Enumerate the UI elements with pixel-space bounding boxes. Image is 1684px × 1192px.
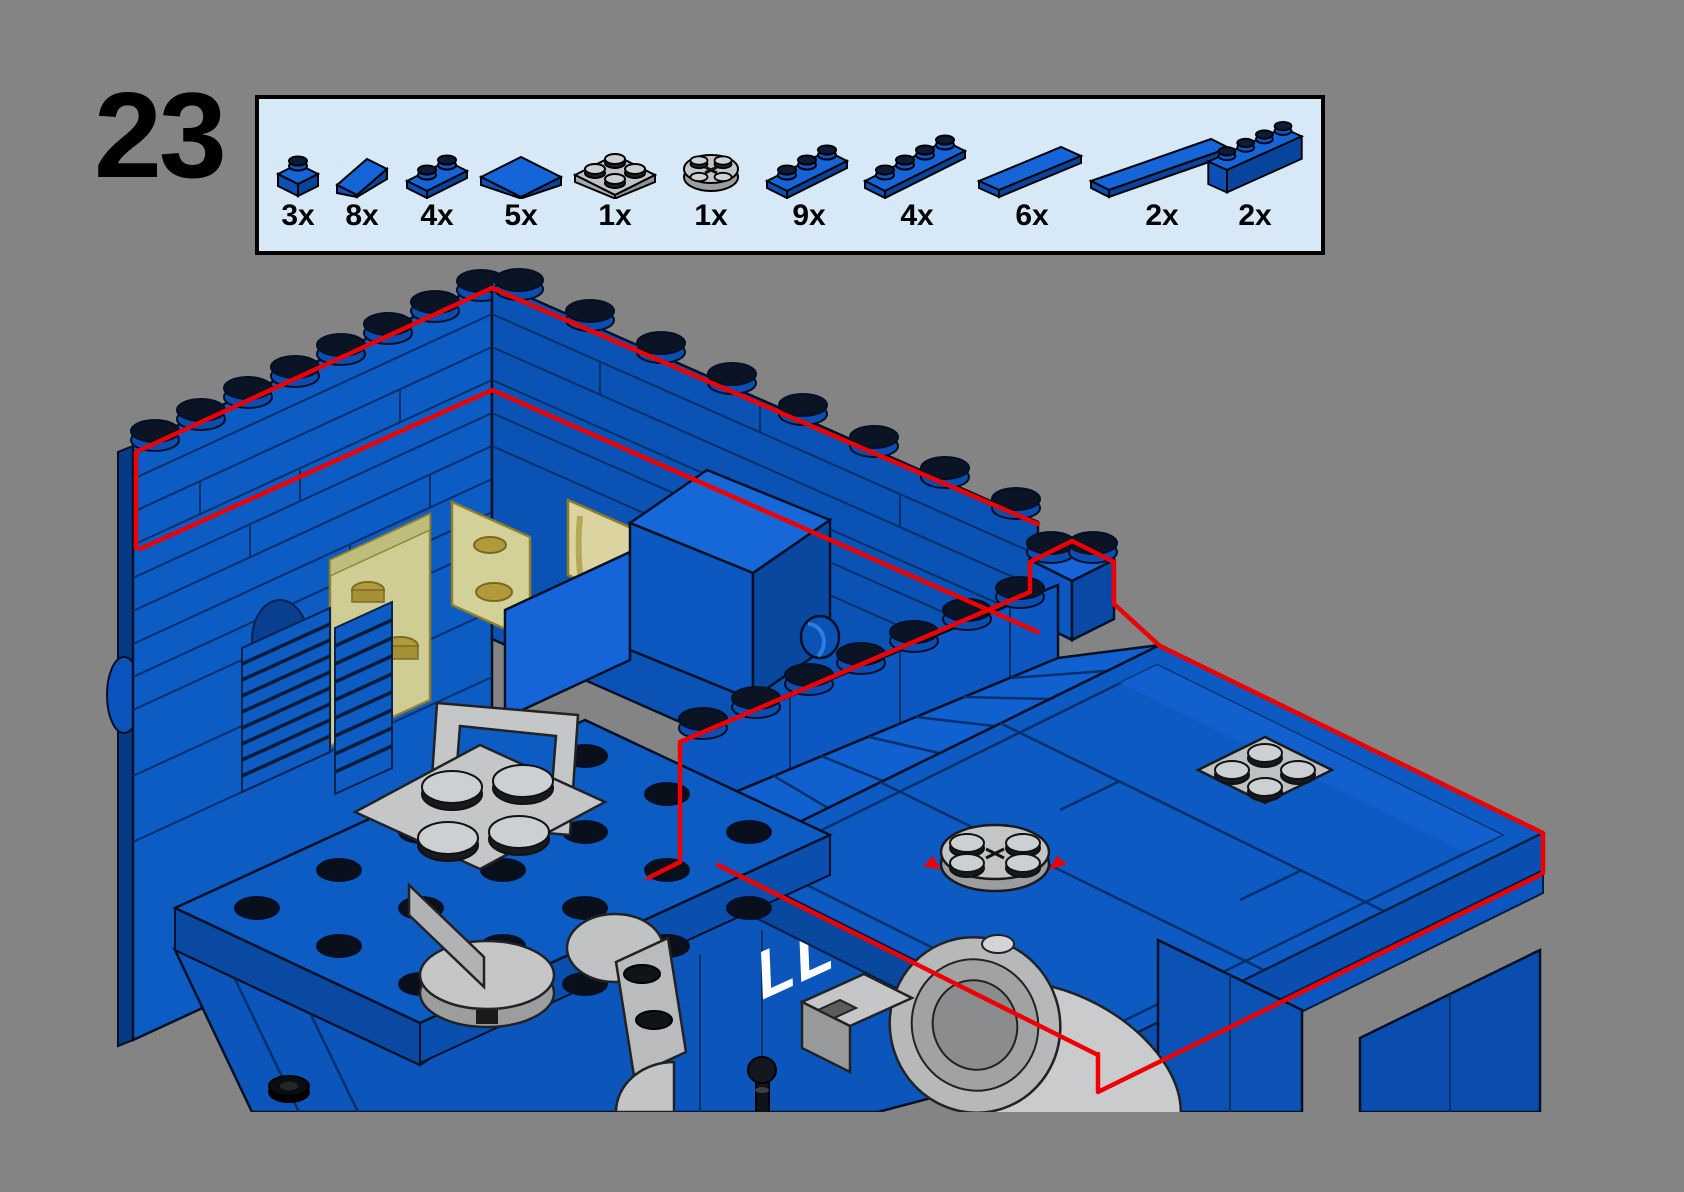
model-illustration: LL 92 <box>0 0 1684 1192</box>
instruction-page: 23 3x 8x <box>0 0 1684 1192</box>
round-plate-black <box>269 1076 309 1102</box>
